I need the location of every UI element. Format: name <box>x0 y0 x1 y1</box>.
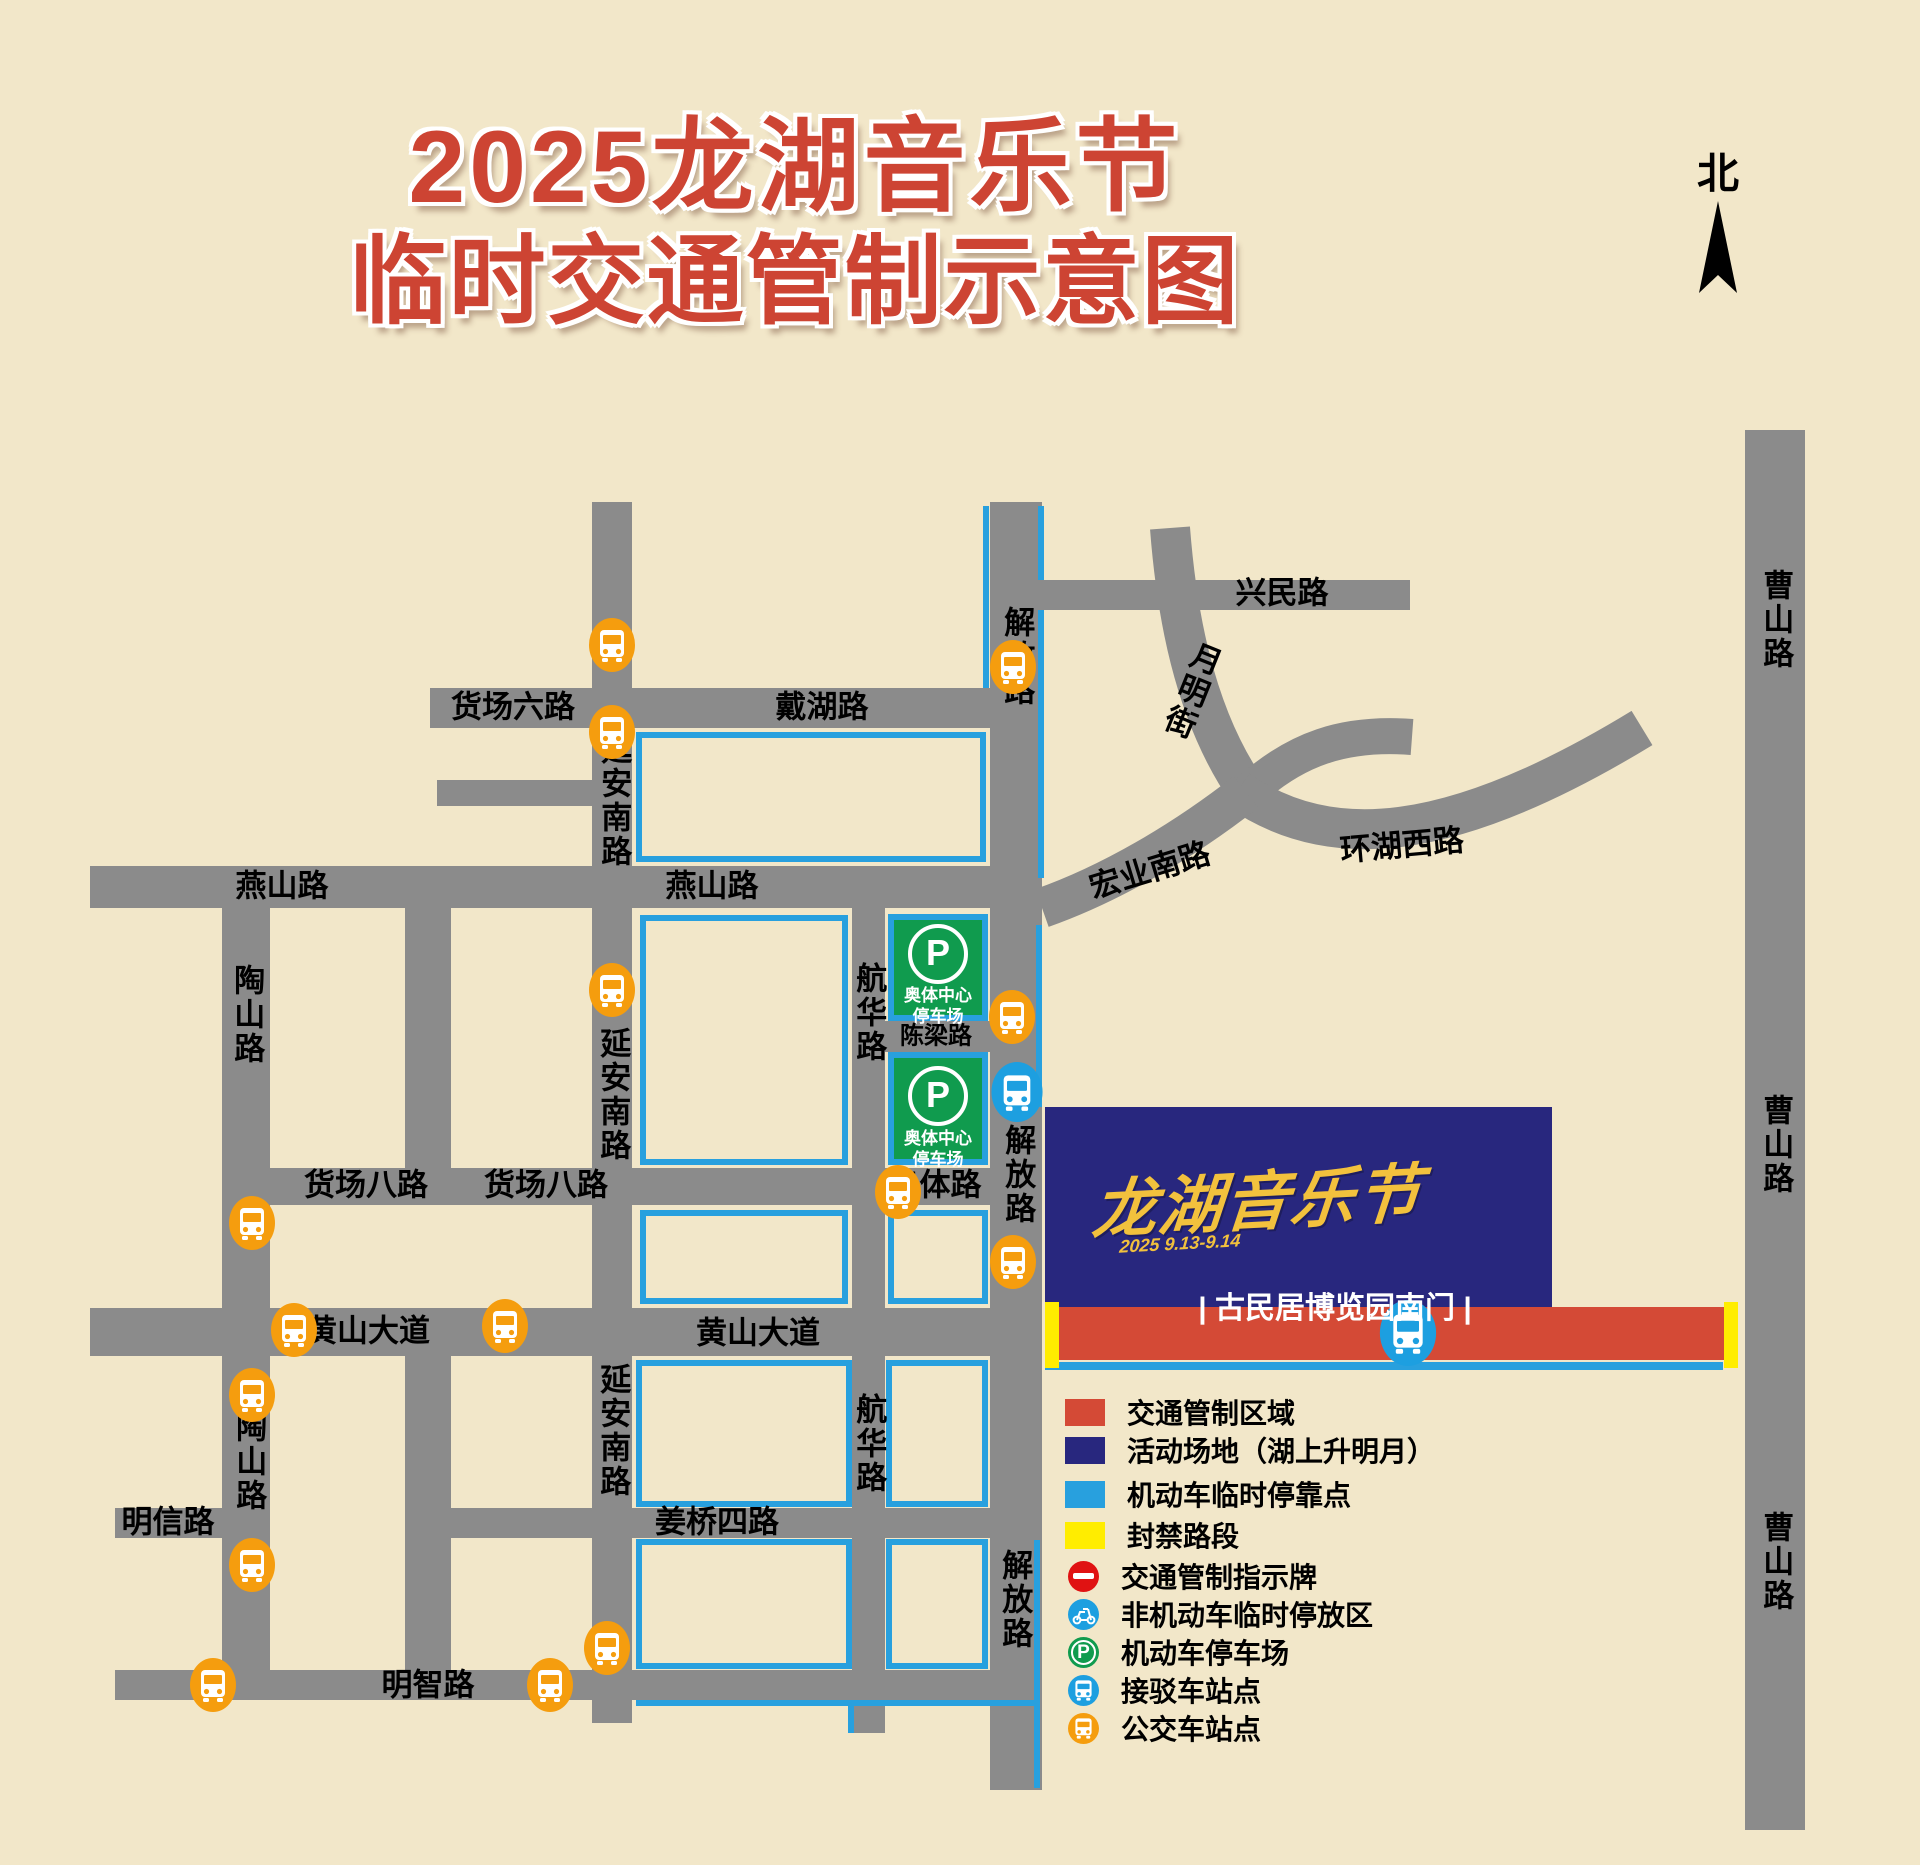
bus-stop-icon <box>482 1299 528 1353</box>
no-entry-icon <box>1068 1561 1099 1592</box>
road-label: 延安南路 <box>596 1027 629 1163</box>
legend-label: 非机动车临时停放区 <box>1121 1594 1373 1634</box>
road-label: 货场八路 <box>304 1170 428 1203</box>
curb-block <box>636 1360 852 1507</box>
bus-stop-icon <box>989 990 1035 1044</box>
bus-icon <box>1068 1675 1099 1706</box>
legend-label: 机动车临时停靠点 <box>1127 1474 1351 1514</box>
legend-label: 交通管制区域 <box>1127 1392 1295 1432</box>
road-label: 燕山路 <box>666 871 759 904</box>
curb-line <box>848 1700 854 1733</box>
bus-icon <box>1068 1713 1099 1744</box>
road-mid-road-north <box>405 908 451 1170</box>
closed-segment <box>1724 1302 1738 1368</box>
road-label: 货场八路 <box>484 1170 608 1203</box>
road-label: 姜桥四路 <box>655 1507 779 1540</box>
road-label: 黄山大道 <box>696 1318 820 1351</box>
road-label: 货场六路 <box>451 692 575 725</box>
bus-stop-icon <box>190 1658 236 1712</box>
curb-line <box>636 1700 1036 1706</box>
road-label: 黄山大道 <box>306 1316 430 1349</box>
curb-block <box>640 915 848 1165</box>
legend-item: 封禁路段 <box>1065 1518 1239 1552</box>
road-label: 曹山路 <box>1759 1511 1792 1613</box>
parking-lot-name: 奥体中心 <box>904 986 972 1005</box>
bus-stop-icon <box>990 1235 1036 1289</box>
curb-line <box>1034 1540 1040 1788</box>
parking-icon: P <box>908 1066 968 1126</box>
curb-block <box>636 1539 852 1669</box>
road-label: 明智路 <box>382 1670 475 1703</box>
road-xingmin-road <box>1042 580 1410 610</box>
road-west-stub-road <box>437 780 593 806</box>
legend-label: 封禁路段 <box>1127 1515 1239 1555</box>
legend-label: 活动场地（湖上升明月） <box>1127 1430 1435 1470</box>
road-label: 明信路 <box>122 1507 215 1540</box>
bus-stop-icon <box>589 705 635 759</box>
parking-lot: P奥体中心停车场 <box>888 1052 988 1165</box>
curb-block <box>640 1210 848 1304</box>
curb-block <box>888 1210 988 1304</box>
road-label: 航华路 <box>852 962 885 1064</box>
legend-item: 接驳车站点 <box>1065 1673 1261 1707</box>
legend-swatch <box>1065 1481 1105 1508</box>
bus-stop-icon <box>271 1303 317 1357</box>
curb-block <box>886 1360 988 1507</box>
road-label: 陈梁路 <box>900 1023 972 1048</box>
bus-stop-icon <box>229 1368 275 1422</box>
legend-item: 交通管制指示牌 <box>1065 1559 1317 1593</box>
legend-item: 活动场地（湖上升明月） <box>1065 1433 1435 1467</box>
road-label: 陶山路 <box>232 1411 265 1513</box>
legend-item: 非机动车临时停放区 <box>1065 1597 1373 1631</box>
legend-item: 公交车站点 <box>1065 1711 1261 1745</box>
parking-icon: P <box>908 924 968 984</box>
road-label: 戴湖路 <box>776 692 869 725</box>
legend-swatch <box>1065 1437 1105 1464</box>
gate-label: | 古民居博览园南门 | <box>1198 1283 1471 1327</box>
parking-lot-name: 奥体中心 <box>904 1129 972 1148</box>
curb-block <box>636 732 986 862</box>
road-label: 解放路 <box>998 1549 1031 1651</box>
legend-item: P机动车停车场 <box>1065 1635 1289 1669</box>
bus-stop-icon <box>589 618 635 672</box>
road-label: 曹山路 <box>1759 1094 1792 1196</box>
legend-swatch <box>1065 1399 1105 1426</box>
closed-segment <box>1045 1302 1059 1368</box>
road-label: 兴民路 <box>1236 578 1329 611</box>
traffic-control-map: 2025龙湖音乐节 临时交通管制示意图 北 P奥体中心停车场P奥体中心停车场龙湖… <box>0 0 1920 1865</box>
road-label: 陶山路 <box>230 964 263 1066</box>
legend-label: 机动车停车场 <box>1121 1632 1289 1672</box>
road-yanshan-road <box>90 866 1042 908</box>
road-label: 解放路 <box>1001 1124 1034 1226</box>
curb-block <box>886 1539 988 1669</box>
bus-stop-icon <box>990 640 1036 694</box>
scooter-icon <box>1068 1599 1099 1630</box>
road-label: 航华路 <box>852 1393 885 1495</box>
curb-line <box>983 506 989 688</box>
road-mid-road-south <box>405 1356 451 1672</box>
legend-swatch <box>1065 1522 1105 1549</box>
bus-stop-icon <box>589 963 635 1017</box>
road-label: 曹山路 <box>1759 569 1792 671</box>
bus-stop-icon <box>527 1658 573 1712</box>
bus-stop-icon <box>584 1621 630 1675</box>
road-label: 延安南路 <box>596 1363 629 1499</box>
legend-label: 交通管制指示牌 <box>1121 1556 1317 1596</box>
curb-line <box>1038 610 1044 878</box>
curb-line <box>1038 506 1044 580</box>
bus-stop-icon <box>875 1165 921 1219</box>
bus-stop-icon <box>229 1196 275 1250</box>
curve-hongye-south-road <box>1042 792 1246 908</box>
road-label: 燕山路 <box>236 871 329 904</box>
legend-label: 公交车站点 <box>1121 1708 1261 1748</box>
curve-yueming-branch <box>1246 736 1412 794</box>
legend-label: 接驳车站点 <box>1121 1670 1261 1710</box>
parking-lot: P奥体中心停车场 <box>888 914 988 1021</box>
legend-item: 机动车临时停靠点 <box>1065 1477 1351 1511</box>
parking-lot-label: 奥体中心停车场 <box>894 985 982 1028</box>
parking-icon: P <box>1068 1637 1099 1668</box>
legend-item: 交通管制区域 <box>1065 1395 1295 1429</box>
bus-stop-icon <box>229 1538 275 1592</box>
shuttle-stop-icon <box>987 1062 1047 1122</box>
